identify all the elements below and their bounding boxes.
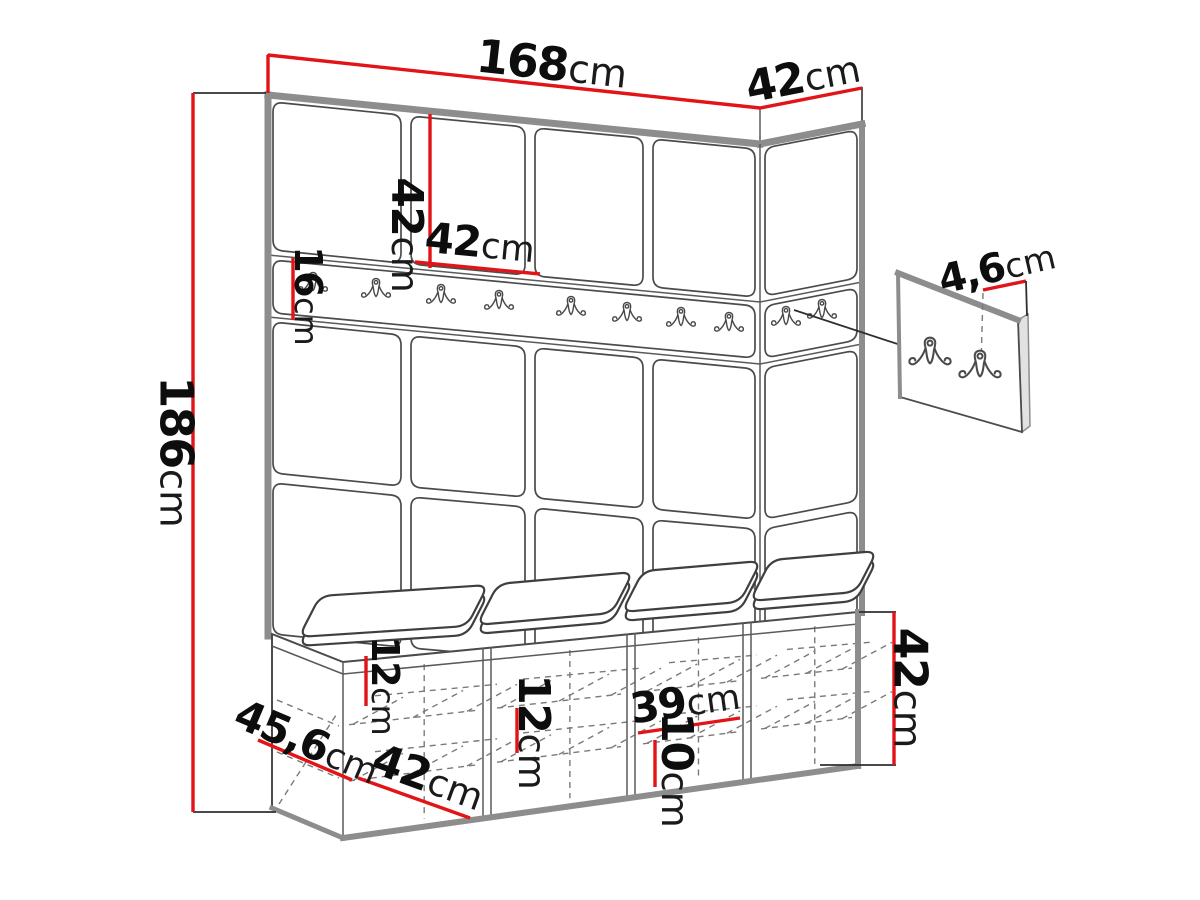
upholstered-panel bbox=[411, 337, 525, 496]
upholstered-panel bbox=[765, 352, 857, 518]
upholstered-panel bbox=[535, 129, 643, 285]
upholstered-panel bbox=[653, 140, 755, 296]
furniture-dimension-diagram: 168cm 42cm 186cm 42cm 42cm 16cm 4,6cm 42… bbox=[0, 0, 1200, 900]
dim-label-total-height: 186cm bbox=[153, 376, 200, 527]
dim-label-bench-front-b: 12cm bbox=[511, 674, 555, 790]
upholstered-panel bbox=[765, 290, 857, 357]
upholstered-panel bbox=[535, 349, 643, 507]
dim-label-panel-height: 42cm bbox=[384, 177, 428, 293]
upholstered-panel bbox=[653, 360, 755, 518]
upholstered-panel bbox=[273, 323, 401, 485]
dim-label-bench-inner-height: 10cm bbox=[654, 712, 698, 828]
dim-label-rail-height: 16cm bbox=[289, 246, 327, 346]
dim-label-bench-front-a: 12cm bbox=[366, 636, 404, 736]
dim-label-bench-height: 42cm bbox=[887, 628, 934, 749]
upholstered-panel bbox=[765, 132, 857, 295]
